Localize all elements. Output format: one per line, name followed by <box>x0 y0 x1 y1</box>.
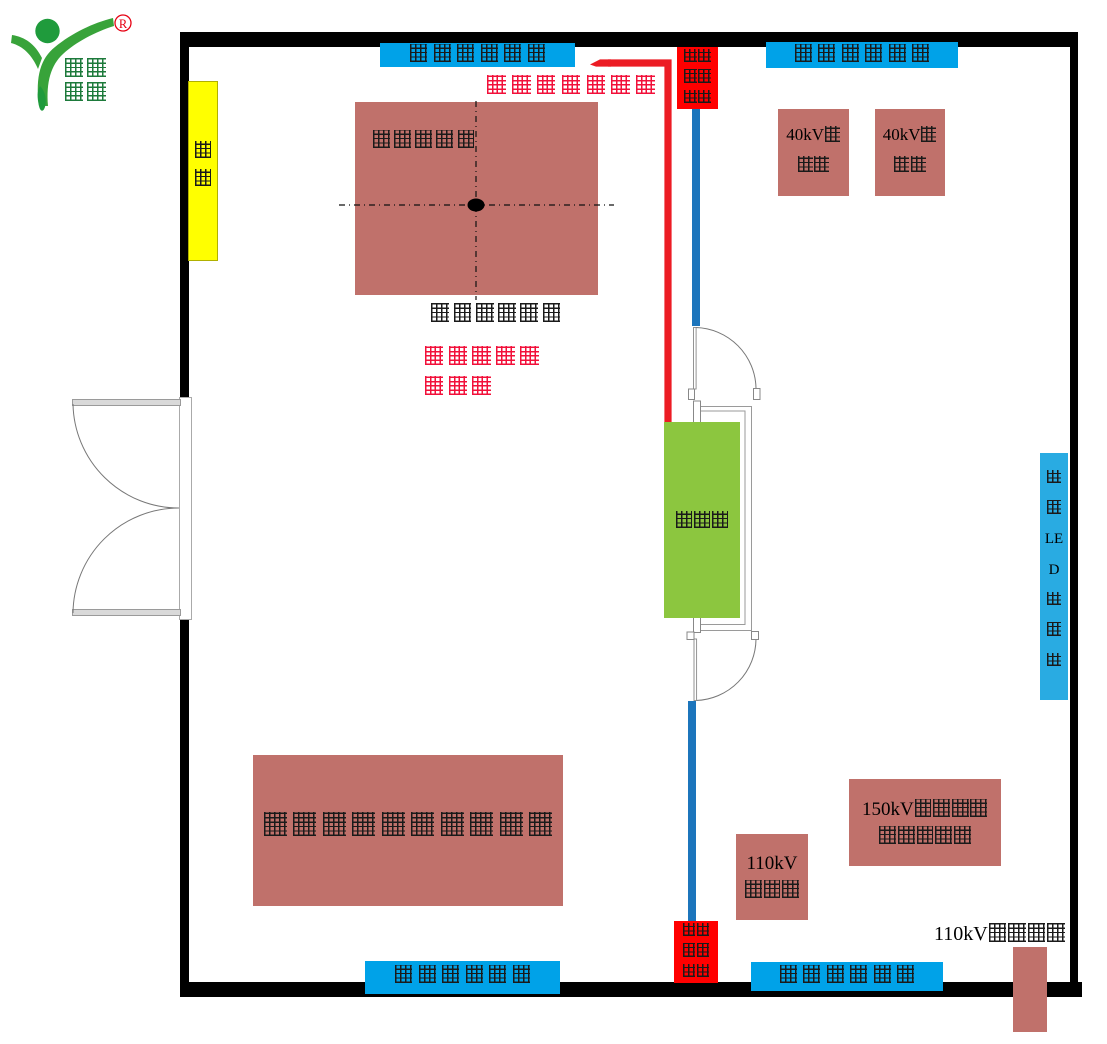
svg-text:R: R <box>119 17 128 31</box>
